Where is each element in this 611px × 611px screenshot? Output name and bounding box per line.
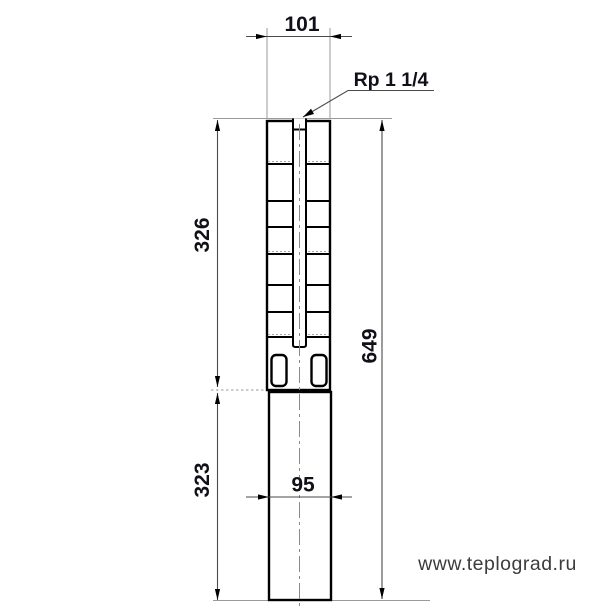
dimension-value-motor-width: 95: [291, 474, 315, 497]
pump-dimension-drawing: 101 Rp 1 1/4 326 323 649 95 www.teplogra…: [0, 0, 611, 611]
connection-thread-label: Rp 1 1/4: [354, 69, 429, 91]
dimension-value-top-width: 101: [284, 13, 319, 36]
watermark-text: www.teplograd.ru: [417, 553, 577, 575]
dimension-value-motor-section: 323: [191, 462, 214, 497]
dimension-value-total-height: 649: [359, 328, 382, 363]
dimension-value-pump-section: 326: [191, 217, 214, 252]
drawing-canvas: 101 Rp 1 1/4 326 323 649 95 www.teplogra…: [0, 0, 611, 611]
